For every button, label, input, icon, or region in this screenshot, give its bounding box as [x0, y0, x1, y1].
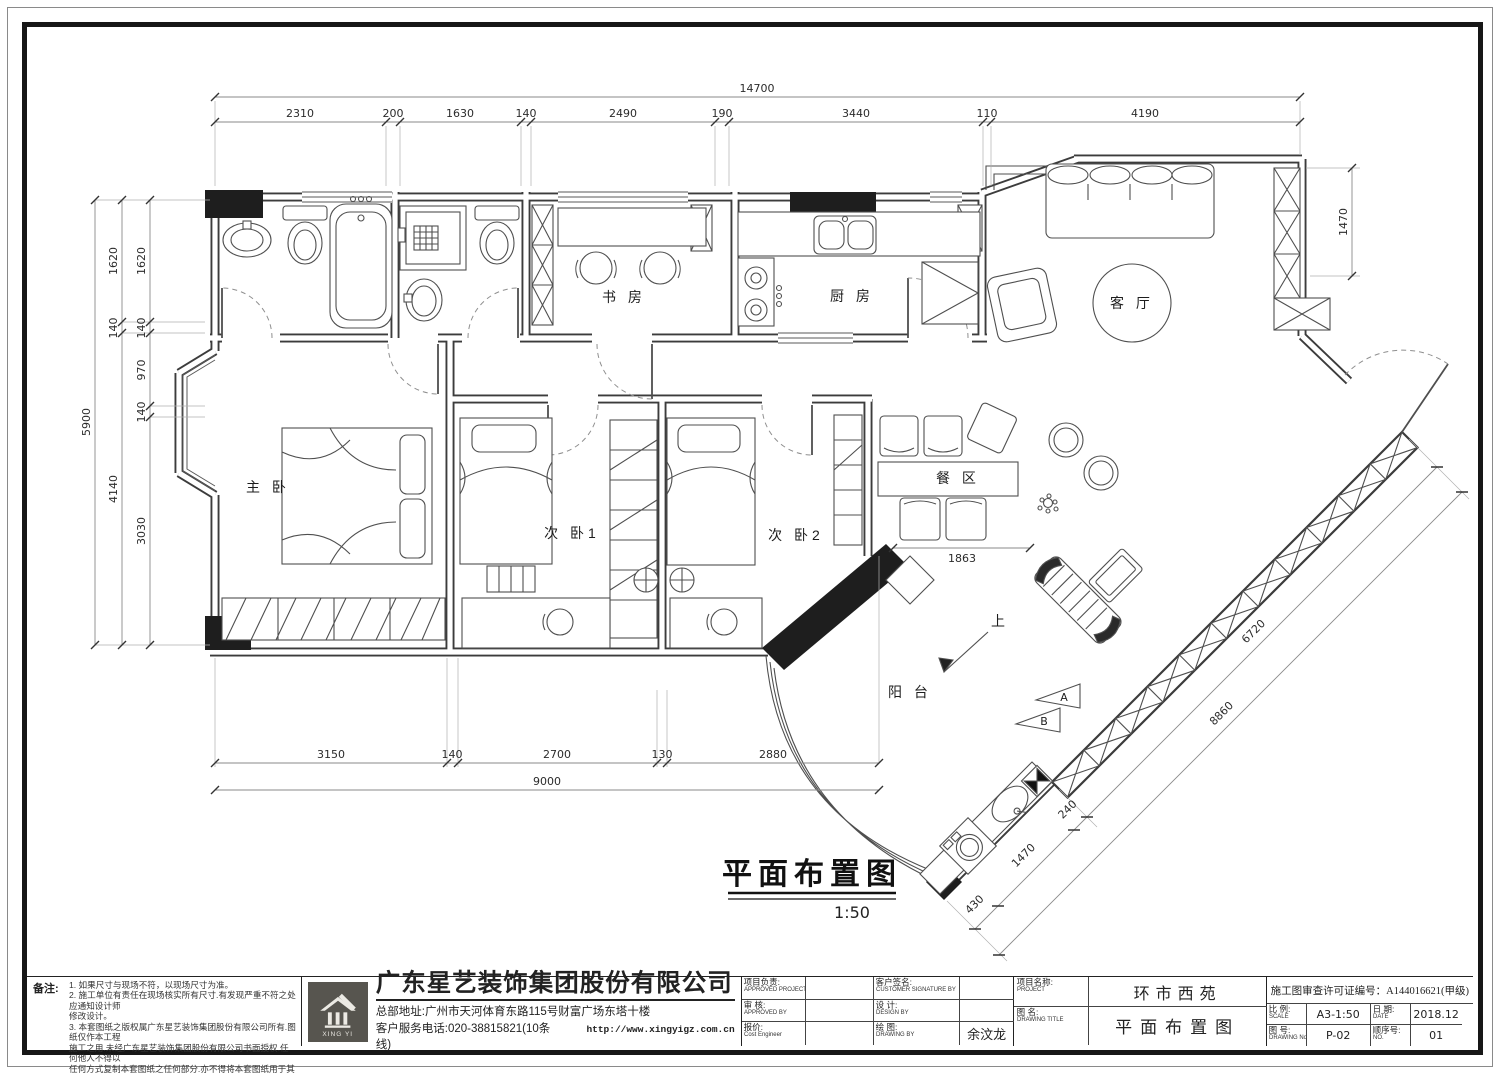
- dim-label: 9000: [533, 775, 561, 788]
- logo-text: XING YI: [322, 1031, 353, 1038]
- field-project: 项目名称: PROJECT: [1014, 977, 1089, 1007]
- pillow: [400, 499, 425, 558]
- company-panel: XING YI 广东星艺装饰集团股份有限公司 总部地址:广州市天河体育东路115…: [302, 977, 742, 1046]
- dim-label: 140: [107, 318, 120, 339]
- company-phone: 客户服务电话:020-38815821(10条线): [376, 1020, 565, 1052]
- dimension-right: 1470: [1306, 164, 1360, 280]
- company-logo: XING YI: [308, 982, 368, 1042]
- dim-label: 14700: [740, 82, 775, 95]
- stool: [547, 609, 573, 635]
- toilet: [475, 206, 519, 264]
- field-cost-value: [806, 1022, 874, 1045]
- balcony-fixtures: [886, 556, 1080, 894]
- dimensions-bottom: 3150 140 2700 130 2880 9000: [211, 556, 883, 794]
- dim-label: 2880: [759, 748, 787, 761]
- dimensions-diagonal: 6720 8860 240 1470 430: [947, 439, 1469, 961]
- study-room: [558, 208, 706, 284]
- dimensions-left: 5900 1620 140 4140 1620 140 970 140 3030: [80, 196, 210, 649]
- project-name-value: 环市西苑: [1089, 977, 1267, 1007]
- bathtub: [330, 197, 392, 329]
- room-label-study: 书 房: [602, 289, 646, 305]
- seq-value: 01: [1411, 1025, 1462, 1046]
- balcony-diagonal-wall: [762, 544, 908, 670]
- master-bedroom-furniture: [282, 428, 432, 564]
- chair: [880, 416, 918, 456]
- armchair: [986, 266, 1058, 343]
- fridge: [922, 262, 978, 324]
- shower: [398, 206, 466, 270]
- notes-label: 备注:: [33, 980, 69, 1044]
- notes-panel: 备注: 1. 如果尺寸与现场不符，以现场尺寸为准。 2. 施工单位有责任在现场核…: [27, 977, 302, 1046]
- drawing-title: 平面布置图 1:50: [722, 858, 902, 922]
- dim-label: 8860: [1207, 699, 1236, 728]
- title-block: 备注: 1. 如果尺寸与现场不符，以现场尺寸为准。 2. 施工单位有责任在现场核…: [27, 976, 1473, 1046]
- project-grid: 项目名称: PROJECT 环市西苑 图 名: DRAWING TITLE 平面…: [1014, 977, 1267, 1046]
- room-label-master: 主 卧: [246, 479, 290, 495]
- dim-label: 190: [712, 107, 733, 120]
- double-sink: [814, 216, 876, 254]
- field-seq: 顺序号: NO.: [1371, 1025, 1411, 1046]
- scale-value: A3-1:50: [1307, 1004, 1371, 1025]
- dining-area-furniture: [878, 402, 1143, 647]
- pillow: [400, 435, 425, 494]
- dim-label: 240: [1056, 798, 1080, 822]
- room-label-living: 客 厅: [1110, 295, 1154, 311]
- dim-label: 3150: [317, 748, 345, 761]
- bay-window: [183, 355, 215, 491]
- section-marker-b: B: [1040, 715, 1048, 728]
- field-scale: 比 例: SCALE: [1267, 1004, 1307, 1025]
- field-draw-value: 余汶龙: [960, 1022, 1014, 1045]
- drawing-no-value: P-02: [1307, 1025, 1371, 1046]
- desk: [462, 598, 610, 648]
- stair-up-label: 上: [991, 613, 1009, 629]
- dim-label: 1620: [135, 247, 148, 275]
- drawing-title-value: 平面布置图: [1089, 1007, 1267, 1045]
- section-flags: [1016, 684, 1080, 732]
- field-customer-sign-value: [960, 977, 1014, 1000]
- room-label-kitchen: 厨 房: [830, 288, 874, 304]
- sofa: [1046, 164, 1214, 238]
- room-label-bed3: 次 卧2: [768, 527, 824, 543]
- toilet: [283, 206, 327, 264]
- field-review-value: [806, 1000, 874, 1022]
- room-label-dining: 餐 区: [936, 470, 980, 486]
- field-date: 日 期: DATE: [1371, 1004, 1411, 1025]
- field-draw: 绘 图: DRAWING BY: [874, 1022, 960, 1045]
- dim-label: 140: [442, 748, 463, 761]
- chair: [946, 498, 986, 540]
- chair: [644, 252, 676, 284]
- company-name: 广东星艺装饰集团股份有限公司: [376, 971, 735, 1001]
- date-value: 2018.12: [1411, 1004, 1462, 1025]
- dim-label: 1470: [1009, 841, 1038, 870]
- section-marker-a: A: [1060, 691, 1068, 704]
- plan-title-text: 平面布置图: [722, 858, 902, 891]
- stove: [738, 258, 782, 326]
- plan-scale-text: 1:50: [834, 903, 870, 922]
- dim-label: 140: [516, 107, 537, 120]
- company-website: http://www.xingyigz.com.cn: [586, 1024, 734, 1035]
- signature-grid: 项目负责: APPROVED PROJECT BY 客户签名: CUSTOMER…: [742, 977, 1014, 1046]
- logo-house-icon: [314, 989, 362, 1031]
- dim-label: 1630: [446, 107, 474, 120]
- plant: [1038, 494, 1058, 513]
- floor-plan: 14700 2310 200 1630 140 2490 190 3440 11…: [0, 0, 1500, 1074]
- chair: [966, 402, 1017, 454]
- stair-direction-line: [944, 632, 988, 672]
- dim-label: 1620: [107, 247, 120, 275]
- stool: [711, 609, 737, 635]
- dim-label: 140: [135, 318, 148, 339]
- room-label-balcony: 阳 台: [888, 684, 932, 700]
- field-approved-project-value: [806, 977, 874, 1000]
- field-drawing-no: 图 号: DRAWING No: [1267, 1025, 1307, 1046]
- license-row: 施工图审查许可证编号： A144016621(甲级): [1267, 977, 1473, 1004]
- chair: [900, 498, 940, 540]
- dim-label: 1470: [1337, 208, 1350, 236]
- notes-text: 1. 如果尺寸与现场不符，以现场尺寸为准。 2. 施工单位有责任在现场核实所有尺…: [69, 980, 297, 1044]
- field-cost: 报价: Cost Engineer: [742, 1022, 806, 1045]
- dim-label: 3440: [842, 107, 870, 120]
- living-room-furniture: [986, 164, 1214, 344]
- dim-label: 1863: [948, 552, 976, 565]
- field-approved-project: 项目负责: APPROVED PROJECT BY: [742, 977, 806, 1000]
- kitchen-fixtures: [738, 212, 980, 326]
- dim-label: 970: [135, 360, 148, 381]
- pillow: [472, 425, 536, 452]
- dim-label: 130: [652, 748, 673, 761]
- dim-label: 200: [383, 107, 404, 120]
- field-review: 审 核: APPROVED BY: [742, 1000, 806, 1022]
- entry-door-arc: [1345, 350, 1448, 375]
- dim-label: 5900: [80, 408, 93, 436]
- dim-label: 2490: [609, 107, 637, 120]
- dim-label: 430: [963, 893, 987, 917]
- desk: [558, 208, 706, 246]
- meta-grid: 施工图审查许可证编号： A144016621(甲级) 比 例: SCALE A3…: [1267, 977, 1473, 1046]
- company-address: 总部地址:广州市天河体育东路115号财富广场东塔十楼: [376, 1003, 735, 1019]
- chair: [580, 252, 612, 284]
- dim-label: 3030: [135, 517, 148, 545]
- dim-label: 4190: [1131, 107, 1159, 120]
- chair: [924, 416, 962, 456]
- pillow: [678, 425, 740, 452]
- dim-label: 110: [977, 107, 998, 120]
- field-design: 设 计: DESIGN BY: [874, 1000, 960, 1022]
- field-design-value: [960, 1000, 1014, 1022]
- bathroom-2: [398, 206, 519, 321]
- dim-label: 2700: [543, 748, 571, 761]
- field-customer-sign: 客户签名: CUSTOMER SIGNATURE BY: [874, 977, 960, 1000]
- drawing-sheet: 14700 2310 200 1630 140 2490 190 3440 11…: [0, 0, 1500, 1074]
- dim-label: 140: [135, 402, 148, 423]
- room-label-bed2: 次 卧1: [544, 525, 600, 541]
- dim-label: 2310: [286, 107, 314, 120]
- field-drawing-title: 图 名: DRAWING TITLE: [1014, 1007, 1089, 1045]
- dim-label: 4140: [107, 475, 120, 503]
